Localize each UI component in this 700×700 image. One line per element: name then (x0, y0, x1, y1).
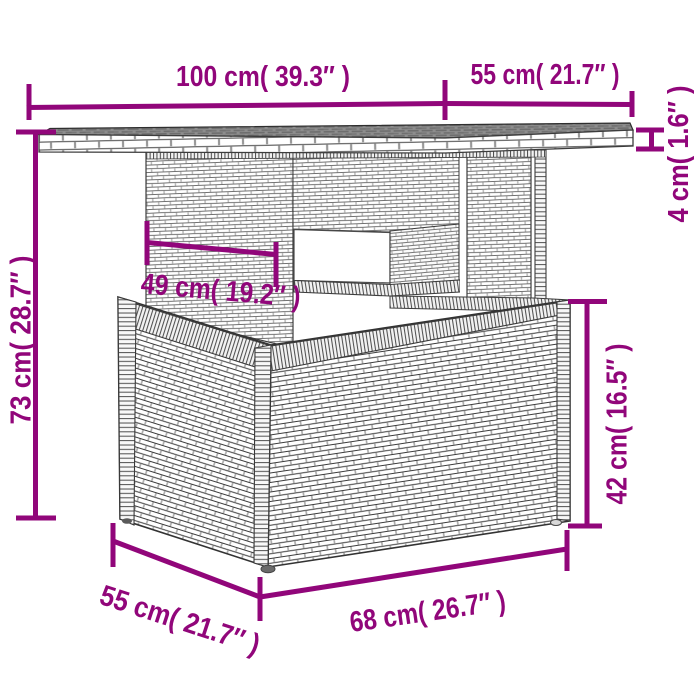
svg-text:42 cm( 16.5″ ): 42 cm( 16.5″ ) (602, 344, 634, 505)
svg-text:73 cm( 28.7″ ): 73 cm( 28.7″ ) (6, 256, 38, 425)
svg-text:55 cm( 21.7″ ): 55 cm( 21.7″ ) (471, 59, 620, 91)
svg-text:100 cm( 39.3″ ): 100 cm( 39.3″ ) (176, 61, 350, 93)
svg-text:4 cm( 1.6″ ): 4 cm( 1.6″ ) (663, 86, 695, 223)
